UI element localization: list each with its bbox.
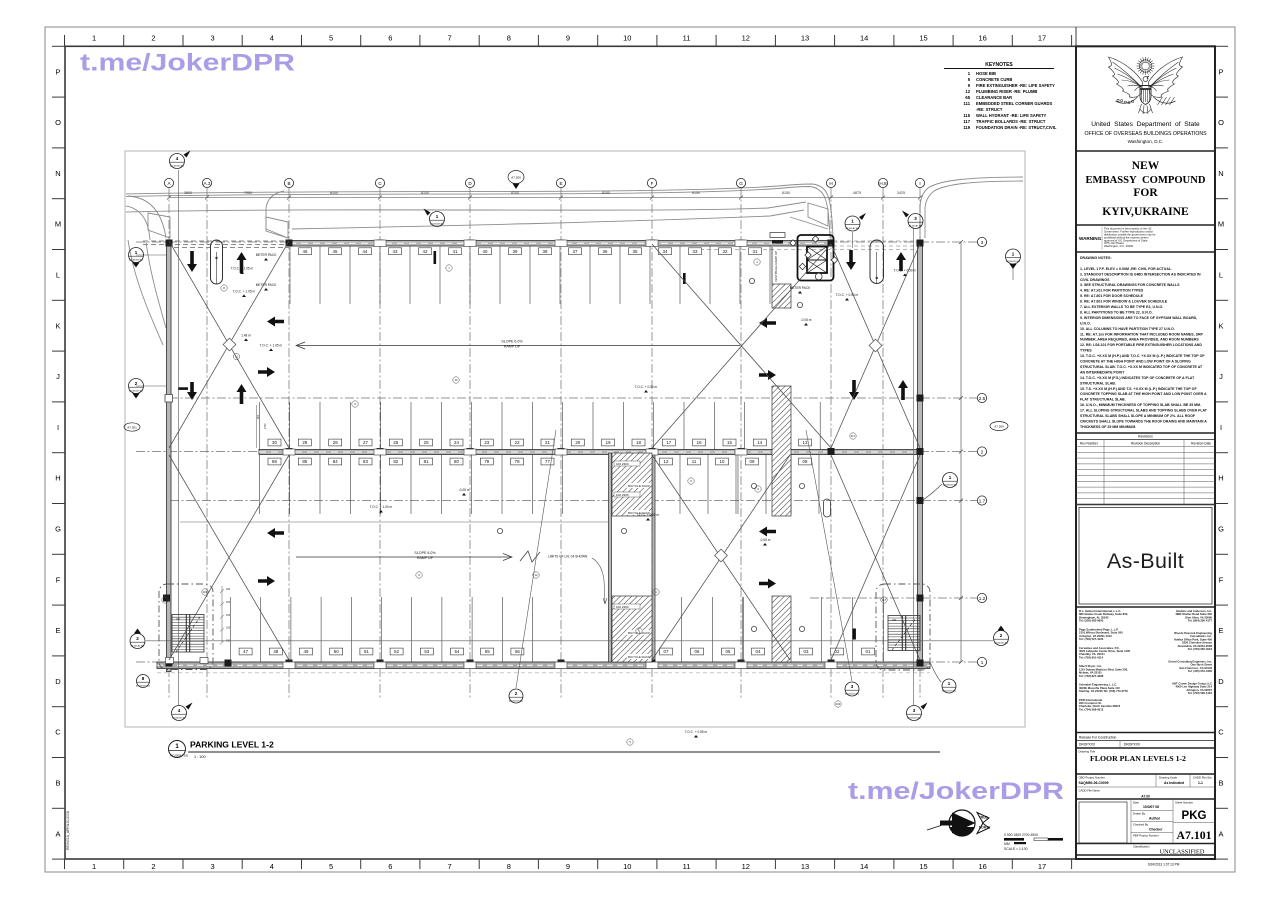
svg-text:FLAT STRUCTURAL SLAB.: FLAT STRUCTURAL SLAB. <box>1080 398 1126 402</box>
svg-text:20: 20 <box>575 440 580 445</box>
svg-text:117: 117 <box>963 119 970 124</box>
svg-text:THICKNESS OF 25 MM MINIMUM.: THICKNESS OF 25 MM MINIMUM. <box>1080 425 1136 429</box>
svg-text:H.8: H.8 <box>879 181 887 186</box>
svg-text:H: H <box>829 181 832 186</box>
svg-text:T.O.C. + 0.50 m: T.O.C. + 0.50 m <box>894 269 917 273</box>
svg-text:A7.101: A7.101 <box>1176 828 1211 842</box>
svg-text:7: 7 <box>448 34 452 43</box>
svg-text:UP: UP <box>892 618 896 622</box>
svg-text:A7.300 A7.301: A7.300 A7.301 <box>845 692 859 695</box>
svg-text:CONCRETE CURB: CONCRETE CURB <box>976 77 1012 82</box>
svg-text:85: 85 <box>302 459 307 464</box>
svg-text:METER PACK: METER PACK <box>256 283 277 287</box>
svg-text:SCALE = 1:100: SCALE = 1:100 <box>1004 847 1028 851</box>
svg-text:DROPXXX: DROPXXX <box>1079 743 1096 747</box>
svg-text:11: 11 <box>692 459 697 464</box>
svg-text:CONCRETE TOPPING SLAB AT THE H: CONCRETE TOPPING SLAB AT THE HIGH POINT … <box>1080 392 1207 396</box>
svg-text:2: 2 <box>151 34 155 43</box>
svg-text:A7.200: A7.200 <box>511 176 521 180</box>
svg-text:12: 12 <box>742 862 750 871</box>
svg-text:Rev Number: Rev Number <box>1080 442 1099 446</box>
svg-text:48: 48 <box>273 649 278 654</box>
svg-text:T.O.C. + 0.50 m: T.O.C. + 0.50 m <box>635 385 658 389</box>
svg-text:T.O.C. + 1.05 m: T.O.C. + 1.05 m <box>260 344 283 348</box>
svg-text:13: 13 <box>801 862 809 871</box>
svg-text:Revisions: Revisions <box>1138 435 1153 439</box>
svg-text:51: 51 <box>364 649 369 654</box>
svg-text:50: 50 <box>334 649 339 654</box>
svg-text:H: H <box>55 474 60 483</box>
svg-text:2.5: 2.5 <box>979 396 986 401</box>
svg-text:T.O.C. + 1.05 m: T.O.C. + 1.05 m <box>231 267 254 271</box>
svg-text:RAMP UP: RAMP UP <box>417 556 434 560</box>
svg-text:-0.05 m: -0.05 m <box>801 318 812 322</box>
svg-text:A7.00: A7.00 <box>1141 795 1150 799</box>
svg-text:6: 6 <box>388 862 392 871</box>
svg-text:T.O.C. + 0.50 m: T.O.C. + 0.50 m <box>836 293 859 297</box>
svg-text:G: G <box>1218 525 1224 534</box>
svg-text:30: 30 <box>272 440 277 445</box>
svg-text:4875: 4875 <box>853 191 861 195</box>
svg-text:A7.300 A7.301: A7.300 A7.301 <box>129 389 143 392</box>
svg-text:22: 22 <box>515 440 520 445</box>
svg-text:7050: 7050 <box>244 191 252 195</box>
svg-text:A: A <box>1218 829 1223 838</box>
svg-text:65: 65 <box>965 95 970 100</box>
svg-text:7: 7 <box>448 862 452 871</box>
svg-text:13. T.O.C. +X.XX M (H.P.) AND: 13. T.O.C. +X.XX M (H.P.) AND T.O.C. +X.… <box>1080 354 1205 358</box>
svg-text:NORTH: NORTH <box>979 826 991 830</box>
svg-text:M: M <box>1218 220 1224 229</box>
svg-text:8100: 8100 <box>421 191 429 195</box>
svg-text:A7.300 A7.301: A7.300 A7.301 <box>129 258 143 261</box>
svg-text:O: O <box>55 118 61 127</box>
svg-text:FOR: FOR <box>1133 187 1158 199</box>
svg-text:Tel: (704) 588-0012: Tel: (704) 588-0012 <box>1079 707 1104 711</box>
svg-text:E: E <box>55 626 60 635</box>
svg-text:TRUE: TRUE <box>979 816 988 820</box>
svg-text:K: K <box>55 321 60 330</box>
svg-text:A7.300 A7.301: A7.300 A7.301 <box>994 641 1008 644</box>
svg-text:46: 46 <box>303 249 308 254</box>
svg-text:17: 17 <box>1038 862 1046 871</box>
svg-text:F: F <box>651 181 654 186</box>
svg-text:RAMP UP: RAMP UP <box>504 345 521 349</box>
svg-text:100 2300: 100 2300 <box>616 462 629 466</box>
svg-text:B: B <box>55 779 60 788</box>
svg-text:2700: 2700 <box>264 423 267 429</box>
svg-text:A7.300 A7.301: A7.300 A7.301 <box>943 483 957 486</box>
svg-text:29: 29 <box>302 440 307 445</box>
svg-text:14: 14 <box>757 440 762 445</box>
svg-text:119: 119 <box>836 702 841 706</box>
svg-text:12: 12 <box>235 355 239 359</box>
svg-text:12: 12 <box>534 573 538 577</box>
svg-text:Tel: (703) 527-4100: Tel: (703) 527-4100 <box>1079 637 1104 641</box>
svg-text:9: 9 <box>566 862 570 871</box>
svg-text:8. ALL PARTITIONS TO BE TYPE: 8. ALL PARTITIONS TO BE TYPE 22, U.N.O. <box>1080 311 1153 315</box>
svg-text:Tel: (804) 290-4177: Tel: (804) 290-4177 <box>1188 619 1213 623</box>
svg-text:-0.05 m: -0.05 m <box>459 488 470 492</box>
svg-text:A7.300 A7.301: A7.300 A7.301 <box>131 644 145 647</box>
svg-text:15: 15 <box>919 34 927 43</box>
svg-text:G: G <box>739 181 743 186</box>
svg-text:BICYCLE RACK: BICYCLE RACK <box>628 655 650 659</box>
svg-text:B: B <box>1218 779 1223 788</box>
svg-text:44: 44 <box>363 249 368 254</box>
svg-text:56: 56 <box>515 649 520 654</box>
svg-text:38: 38 <box>543 249 548 254</box>
svg-text:Release For Construction: Release For Construction <box>1079 736 1117 740</box>
svg-text:32: 32 <box>723 249 728 254</box>
svg-text:3. SEE STRUCTURAL DRAWINGS FO: 3. SEE STRUCTURAL DRAWINGS FOR CONCRETE … <box>1080 283 1180 287</box>
svg-text:117: 117 <box>163 598 168 602</box>
svg-text:17. ALL SLOPING STRUCTURAL SLA: 17. ALL SLOPING STRUCTURAL SLABS AND TOP… <box>1080 409 1208 413</box>
svg-text:8100: 8100 <box>330 191 338 195</box>
svg-text:Date: Date <box>1133 801 1139 805</box>
svg-text:LIMITS OF LVL 04 SHOWN: LIMITS OF LVL 04 SHOWN <box>548 555 588 559</box>
svg-text:N: N <box>55 169 60 178</box>
svg-text:T.O.C. + 0.50 m: T.O.C. + 0.50 m <box>637 513 660 517</box>
svg-text:A7.200: A7.200 <box>994 425 1004 429</box>
svg-text:40: 40 <box>483 249 488 254</box>
svg-text:BICYCLE RACK: BICYCLE RACK <box>628 484 650 488</box>
svg-text:5: 5 <box>329 862 333 871</box>
svg-text:86: 86 <box>272 459 277 464</box>
svg-text:150: 150 <box>226 627 231 630</box>
svg-text:A7.300 A7.301: A7.300 A7.301 <box>136 684 150 687</box>
svg-text:150: 150 <box>226 601 231 604</box>
svg-text:8150: 8150 <box>692 191 700 195</box>
svg-text:KEYNOTES: KEYNOTES <box>985 62 1013 68</box>
svg-text:K: K <box>1218 321 1223 330</box>
svg-text:Author: Author <box>1149 817 1161 821</box>
svg-text:N: N <box>1218 169 1223 178</box>
svg-text:1.2: 1.2 <box>979 596 986 601</box>
svg-text:L: L <box>1219 271 1223 280</box>
svg-text:10. ALL COLUMNS TO HAVE PARTI: 10. ALL COLUMNS TO HAVE PARTITION TYPE 2… <box>1080 327 1175 331</box>
svg-text:A.3: A.3 <box>204 181 211 186</box>
svg-text:A7.300 A7.301: A7.300 A7.301 <box>909 224 923 227</box>
svg-text:8150: 8150 <box>782 191 790 195</box>
svg-text:Classification: Classification <box>1133 845 1150 849</box>
svg-text:A7.301: A7.301 <box>127 426 137 430</box>
svg-text:33: 33 <box>693 249 698 254</box>
svg-text:05: 05 <box>726 649 731 654</box>
svg-text:0 900 1800 2700 4500: 0 900 1800 2700 4500 <box>1004 833 1038 837</box>
svg-text:J: J <box>1219 372 1223 381</box>
svg-text:D: D <box>1218 677 1224 686</box>
svg-text:100 2300: 100 2300 <box>616 605 629 609</box>
svg-text:150: 150 <box>226 614 231 617</box>
svg-text:16. U.N.O., MINIMUM THICKNESS: 16. U.N.O., MINIMUM THICKNESS OF TOPPING… <box>1080 403 1201 407</box>
svg-text:79: 79 <box>484 459 489 464</box>
svg-text:81: 81 <box>424 459 429 464</box>
svg-text:CONCRETE AT THE HIGH POINT AND: CONCRETE AT THE HIGH POINT AND LOW POINT… <box>1080 360 1191 364</box>
svg-text:45: 45 <box>333 249 338 254</box>
svg-text:8100: 8100 <box>511 191 519 195</box>
svg-text:3425: 3425 <box>897 191 905 195</box>
svg-text:7. ALL EXTERIOR WALLS TO BE T: 7. ALL EXTERIOR WALLS TO BE TYPE E2, U.N… <box>1080 305 1163 309</box>
svg-text:VESTIBULE RAMP UP: VESTIBULE RAMP UP <box>774 251 778 282</box>
svg-text:EMBEDDED STEEL CORNER GUARDS: EMBEDDED STEEL CORNER GUARDS <box>976 101 1053 106</box>
svg-text:600: 600 <box>257 414 260 419</box>
svg-text:P: P <box>55 67 60 76</box>
svg-text:-RE: STRUCT: -RE: STRUCT <box>976 107 1003 112</box>
svg-text:1-1: 1-1 <box>1198 781 1203 785</box>
svg-text:14: 14 <box>860 862 868 871</box>
svg-text:PLUMBING RISER -RE: PLUMB: PLUMBING RISER -RE: PLUMB <box>976 89 1037 94</box>
svg-text:Washington, D.C. 20000: Washington, D.C. 20000 <box>1104 244 1134 248</box>
svg-text:1.7: 1.7 <box>979 498 986 503</box>
svg-text:55: 55 <box>485 649 490 654</box>
svg-text:FOUNDATION DRAIN -RE: STRUCT,C: FOUNDATION DRAIN -RE: STRUCT,CIVIL <box>976 125 1057 130</box>
svg-text:16: 16 <box>697 440 702 445</box>
svg-text:25: 25 <box>424 440 429 445</box>
svg-text:A7.300 A7.301: A7.300 A7.301 <box>942 689 956 692</box>
svg-text:UNCLASSIFIED: UNCLASSIFIED <box>1160 849 1205 856</box>
svg-text:14. T.O.C. +X.XX M (F.S.) INDI: 14. T.O.C. +X.XX M (F.S.) INDICATES TOP … <box>1080 376 1195 380</box>
svg-text:A7.300 A7.301: A7.300 A7.301 <box>1006 260 1020 263</box>
svg-text:2: 2 <box>981 449 984 454</box>
svg-text:A7.300 A7.301: A7.300 A7.301 <box>172 716 186 719</box>
svg-text:CIVIL DRAWINGS: CIVIL DRAWINGS <box>1080 278 1110 282</box>
svg-text:T.O.C. + 1.00 m: T.O.C. + 1.00 m <box>370 505 393 509</box>
svg-text:4. RE: A7.x01 FOR PARTITION T: 4. RE: A7.x01 FOR PARTITION TYPES <box>1080 289 1144 293</box>
svg-text:H: H <box>1218 474 1223 483</box>
svg-text:10: 10 <box>720 459 725 464</box>
svg-text:12: 12 <box>454 378 458 382</box>
svg-text:Checked By: Checked By <box>1133 823 1149 827</box>
svg-text:21: 21 <box>545 440 550 445</box>
svg-text:STRUCTURAL SLAB. T.O.C. +X.XX: STRUCTURAL SLAB. T.O.C. +X.XX M INDICATE… <box>1080 365 1203 369</box>
svg-text:F: F <box>56 575 61 584</box>
svg-text:A7.300 A7.301: A7.300 A7.301 <box>170 164 184 167</box>
svg-text:J: J <box>56 372 60 381</box>
svg-text:Sheet Number: Sheet Number <box>1175 801 1193 805</box>
svg-text:C: C <box>55 728 61 737</box>
svg-text:1: 1 <box>92 862 96 871</box>
svg-text:TRAFFIC BOLLARDS -RE: STRUCT: TRAFFIC BOLLARDS -RE: STRUCT <box>976 119 1046 124</box>
svg-text:MM: MM <box>1004 842 1010 846</box>
svg-text:41: 41 <box>453 249 458 254</box>
svg-text:8: 8 <box>507 862 511 871</box>
svg-text:117: 117 <box>851 434 856 438</box>
svg-text:E: E <box>559 181 562 186</box>
svg-text:CLEARANCE BAR: CLEARANCE BAR <box>976 95 1012 100</box>
svg-text:F: F <box>1219 575 1224 584</box>
svg-text:3: 3 <box>211 862 215 871</box>
svg-text:A: A <box>55 829 60 838</box>
svg-text:28: 28 <box>333 440 338 445</box>
svg-text:L: L <box>56 271 60 280</box>
svg-text:5: 5 <box>329 34 333 43</box>
svg-text:83: 83 <box>363 459 368 464</box>
svg-text:12: 12 <box>664 459 669 464</box>
svg-text:Tel: (703) 801-4114: Tel: (703) 801-4114 <box>1079 655 1104 659</box>
svg-text:Tel: (205) 082-0800: Tel: (205) 082-0800 <box>1079 619 1104 623</box>
svg-text:52: 52 <box>394 649 399 654</box>
svg-text:OBO Project Number: OBO Project Number <box>1079 776 1105 780</box>
svg-text:United States Department of St: United States Department of State <box>1091 121 1200 128</box>
svg-text:PBF Project Number: PBF Project Number <box>1133 834 1159 838</box>
svg-text:E: E <box>1218 626 1223 635</box>
svg-text:G: G <box>55 525 61 534</box>
svg-text:10/3/07 08: 10/3/07 08 <box>1143 805 1159 809</box>
svg-text:1: 1 <box>981 660 984 665</box>
svg-text:SLOPE 6.0%: SLOPE 6.0% <box>501 340 523 344</box>
svg-text:3: 3 <box>981 240 984 245</box>
svg-text:SLOPE 6.0%: SLOPE 6.0% <box>414 551 436 555</box>
svg-text:49: 49 <box>304 649 309 654</box>
svg-text:13: 13 <box>803 440 808 445</box>
svg-text:FLOOR PLAN LEVELS 1-2: FLOOR PLAN LEVELS 1-2 <box>1090 754 1186 763</box>
svg-text:24: 24 <box>454 440 459 445</box>
svg-text:43: 43 <box>393 249 398 254</box>
svg-text:5. RE: A7.801 FOR DOOR SCHEDU: 5. RE: A7.801 FOR DOOR SCHEDULE <box>1080 294 1144 298</box>
svg-text:111: 111 <box>964 101 971 106</box>
svg-text:O: O <box>1218 118 1224 127</box>
svg-text:U.N.O.: U.N.O. <box>1080 321 1091 325</box>
svg-text:1 : 100: 1 : 100 <box>194 755 206 759</box>
svg-text:84: 84 <box>333 459 338 464</box>
svg-text:04: 04 <box>756 649 761 654</box>
svg-text:115: 115 <box>963 113 970 118</box>
svg-text:117: 117 <box>882 598 887 602</box>
svg-text:As Indicated: As Indicated <box>1164 781 1184 785</box>
svg-text:DROPXXX: DROPXXX <box>1124 743 1141 747</box>
svg-text:27: 27 <box>363 440 368 445</box>
svg-text:Revision Date: Revision Date <box>1191 442 1211 446</box>
svg-text:CADD Plot Sta: CADD Plot Sta <box>1193 776 1212 780</box>
svg-text:1. LEVEL 1 F.F. ELEV = 0.00M: 1. LEVEL 1 F.F. ELEV = 0.00M -RE: CIVIL … <box>1080 267 1172 271</box>
svg-text:12. RE: LS8.101 FOR PORTABLE: 12. RE: LS8.101 FOR PORTABLE FIRE EXTING… <box>1080 343 1202 347</box>
svg-text:54: 54 <box>455 649 460 654</box>
svg-text:Tel: (703) 060-4004: Tel: (703) 060-4004 <box>1188 647 1213 651</box>
svg-text:CRICKETS SHALL SLOPE TOWARDS T: CRICKETS SHALL SLOPE TOWARDS THE ROOF DR… <box>1080 420 1207 424</box>
svg-text:KYIV,UKRAINE: KYIV,UKRAINE <box>1102 205 1189 218</box>
svg-text:01: 01 <box>866 649 871 654</box>
svg-text:42: 42 <box>423 249 428 254</box>
svg-text:77: 77 <box>545 459 550 464</box>
svg-text:NUMBER, AREA REQUIRED, AREA PR: NUMBER, AREA REQUIRED, AREA PROVIDED, AN… <box>1080 338 1199 342</box>
svg-text:Revision Description: Revision Description <box>1131 442 1160 446</box>
svg-text:Drawing Title: Drawing Title <box>1079 750 1096 754</box>
svg-text:Tel: (415) 051-4400: Tel: (415) 051-4400 <box>1188 669 1213 673</box>
svg-text:10: 10 <box>623 862 631 871</box>
svg-text:16: 16 <box>979 862 987 871</box>
svg-text:2. STANDOUT DESCRIPTION IS GR: 2. STANDOUT DESCRIPTION IS GRID INTERSEC… <box>1080 272 1201 276</box>
svg-text:13: 13 <box>801 34 809 43</box>
svg-text:119: 119 <box>963 125 970 130</box>
svg-text:WARNING:: WARNING: <box>1079 236 1103 241</box>
svg-text:119: 119 <box>203 590 208 594</box>
svg-text:FIRE EXTINGUISHER -RE: LIFE SA: FIRE EXTINGUISHER -RE: LIFE SAFETY <box>976 83 1055 88</box>
svg-text:3: 3 <box>211 34 215 43</box>
svg-text:SAQM50-06-C0009: SAQM50-06-C0009 <box>1079 781 1109 785</box>
svg-text:DRAWING NOTES:: DRAWING NOTES: <box>1080 256 1112 260</box>
svg-text:1.48 m: 1.48 m <box>241 334 251 338</box>
svg-text:2: 2 <box>151 862 155 871</box>
svg-text:11. RE: A7.1xx FOR INFORMATIO: 11. RE: A7.1xx FOR INFORMATION THAT INCL… <box>1080 332 1204 336</box>
svg-text:18: 18 <box>636 440 641 445</box>
svg-text:78: 78 <box>515 459 520 464</box>
svg-text:Drawing Scale: Drawing Scale <box>1159 776 1177 780</box>
svg-text:11: 11 <box>683 862 691 871</box>
svg-text:TYPES: TYPES <box>1080 349 1092 353</box>
svg-text:4: 4 <box>270 862 274 871</box>
svg-text:4: 4 <box>270 34 274 43</box>
svg-text:t.me/JokerDPR: t.me/JokerDPR <box>848 778 1064 805</box>
svg-text:10: 10 <box>623 34 631 43</box>
svg-text:9. INTERIOR DIMENSIONS ARE TO: 9. INTERIOR DIMENSIONS ARE TO FACE OF GY… <box>1080 316 1197 320</box>
svg-text:Drawn By: Drawn By <box>1133 812 1146 816</box>
svg-text:15: 15 <box>727 440 732 445</box>
svg-text:A7.300 A7.301: A7.300 A7.301 <box>430 222 444 225</box>
svg-text:17: 17 <box>1038 34 1046 43</box>
svg-text:19: 19 <box>606 440 611 445</box>
svg-text:17: 17 <box>666 440 671 445</box>
svg-text:AN INTERMEDIATE POINT: AN INTERMEDIATE POINT <box>1080 370 1125 374</box>
svg-text:07: 07 <box>664 649 669 654</box>
svg-text:HOSE BIB: HOSE BIB <box>976 71 996 76</box>
svg-text:PKG: PKG <box>1182 810 1207 822</box>
svg-text:A7.300 A7.301: A7.300 A7.301 <box>907 716 921 719</box>
svg-text:14: 14 <box>860 34 868 43</box>
svg-text:8: 8 <box>507 34 511 43</box>
svg-text:I: I <box>57 423 59 432</box>
svg-text:NEW: NEW <box>1132 160 1160 172</box>
svg-text:UP: UP <box>176 617 180 621</box>
svg-text:D: D <box>55 677 61 686</box>
svg-text:09: 09 <box>750 459 755 464</box>
svg-text:T.O.C. + 1.05 m: T.O.C. + 1.05 m <box>233 290 256 294</box>
svg-text:As-Built: As-Built <box>1107 549 1184 573</box>
svg-text:Washington, D.C.: Washington, D.C. <box>1128 139 1164 144</box>
svg-text:47: 47 <box>243 649 248 654</box>
svg-text:82: 82 <box>393 459 398 464</box>
svg-text:6/24/2013 1:07:13 PM: 6/24/2013 1:07:13 PM <box>1148 863 1180 867</box>
svg-text:6: 6 <box>388 34 392 43</box>
svg-text:150: 150 <box>226 588 231 591</box>
svg-text:8100: 8100 <box>602 191 610 195</box>
svg-text:STRUCTURAL SLABS SHALL SLOPE A: STRUCTURAL SLABS SHALL SLOPE A MINIMUM O… <box>1080 414 1196 418</box>
svg-text:12: 12 <box>965 89 970 94</box>
svg-text:39: 39 <box>513 249 518 254</box>
svg-text:OFFICE OF OVERSEAS BUILDING: OFFICE OF OVERSEAS BUILDINGS OPERATIONS <box>1084 131 1207 137</box>
svg-text:23: 23 <box>484 440 489 445</box>
svg-text:26: 26 <box>393 440 398 445</box>
svg-text:15. T.S. +X.XX M (H.P.) AND T.: 15. T.S. +X.XX M (H.P.) AND T.S. +X.XX M… <box>1080 387 1197 391</box>
svg-text:-0.05 m: -0.05 m <box>760 538 771 542</box>
svg-text:C: C <box>1218 728 1224 737</box>
svg-text:I: I <box>1220 423 1222 432</box>
svg-text:11: 11 <box>683 34 691 43</box>
svg-text:12: 12 <box>742 34 750 43</box>
svg-text:34: 34 <box>663 249 668 254</box>
svg-text:B: B <box>287 181 290 186</box>
svg-text:EMBASSY COMPOUND: EMBASSY COMPOUND <box>1085 175 1205 186</box>
svg-text:T.O.C. + 0.55 m: T.O.C. + 0.55 m <box>685 730 708 734</box>
svg-text:M: M <box>55 220 61 229</box>
svg-text:80: 80 <box>454 459 459 464</box>
svg-text:6. RE: A7.801 FOR WINDOW & LO: 6. RE: A7.801 FOR WINDOW & LOUVER SCHEDU… <box>1080 300 1168 304</box>
svg-text:37: 37 <box>573 249 578 254</box>
svg-text:08: 08 <box>803 459 808 464</box>
svg-text:t.me/JokerDPR: t.me/JokerDPR <box>80 50 295 77</box>
svg-text:06: 06 <box>695 649 700 654</box>
svg-text:WALL HYDRANT -RE: LIFE SAFETY: WALL HYDRANT -RE: LIFE SAFETY <box>976 113 1047 118</box>
